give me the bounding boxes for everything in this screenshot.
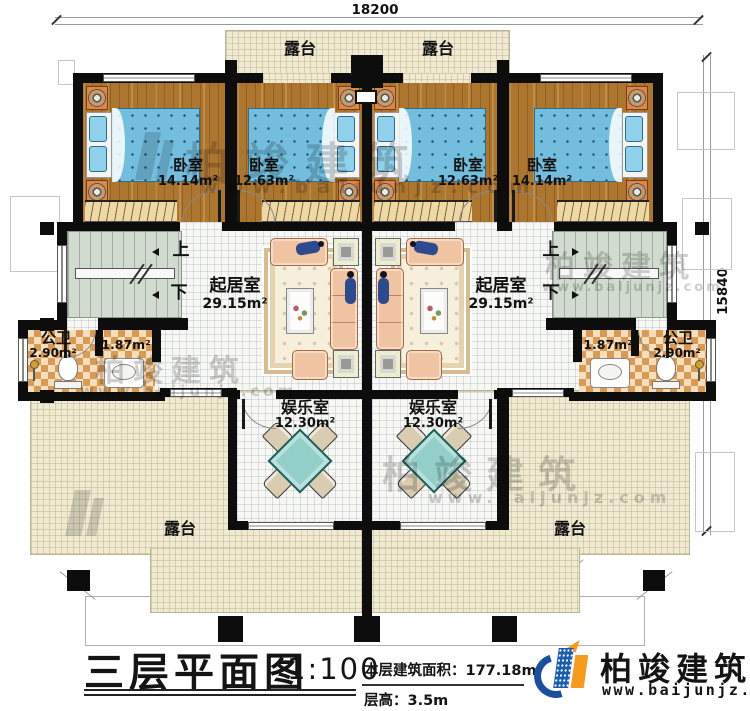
terrace-top-right-label: 露台 xyxy=(410,40,466,58)
window xyxy=(57,245,67,303)
toilet-tank xyxy=(54,381,82,389)
bedroom-4-area: 14.14m² xyxy=(496,175,588,189)
window xyxy=(170,389,222,397)
deck-column xyxy=(492,616,517,642)
entertainment-right-label: 娱乐室 xyxy=(393,399,473,417)
stair-arrow xyxy=(572,248,579,256)
floor-area-label: 本层建筑面积：177.18m² xyxy=(364,659,543,680)
title-underline-2 xyxy=(84,694,356,696)
logo-building-orange xyxy=(571,655,589,688)
person-head xyxy=(410,241,416,247)
wall xyxy=(228,521,248,530)
wardrobe xyxy=(374,200,472,222)
eave-outline xyxy=(695,452,735,532)
nightstand xyxy=(626,86,648,110)
stairs-left-down-label: 下 xyxy=(168,284,190,303)
person-figure xyxy=(345,278,356,304)
wardrobe xyxy=(85,200,177,222)
window xyxy=(540,74,632,82)
stairs-left-up-label: 上 xyxy=(170,241,192,260)
window xyxy=(667,245,677,303)
terrace-door-opening xyxy=(403,73,471,83)
wall xyxy=(554,222,677,231)
pillow xyxy=(337,116,355,142)
living-left-area: 29.15m² xyxy=(200,297,270,312)
window xyxy=(103,74,195,82)
pilaster xyxy=(40,222,54,235)
stairs-right-down-label: 下 xyxy=(540,284,562,303)
wall xyxy=(546,318,636,330)
bedroom-2-label: 卧室 xyxy=(218,157,310,174)
nightstand xyxy=(86,86,108,110)
wall xyxy=(279,222,455,231)
side-table xyxy=(375,350,401,378)
wall xyxy=(497,222,512,231)
nightstand xyxy=(374,86,396,110)
door-leaf xyxy=(494,190,497,222)
pillow xyxy=(377,146,395,172)
bed-sheet-fold xyxy=(322,108,335,182)
bath-left-area: 2.90m² xyxy=(22,347,84,360)
window xyxy=(400,522,486,530)
stair-arrow xyxy=(152,248,159,256)
door-leaf xyxy=(218,190,221,222)
deck-column xyxy=(354,616,380,642)
person-head xyxy=(318,241,324,247)
pillow xyxy=(89,146,107,172)
wardrobe xyxy=(262,200,360,222)
eave-outline xyxy=(677,92,735,150)
left-wall xyxy=(73,73,83,231)
door-leaf xyxy=(242,399,245,429)
stair-arrow xyxy=(152,291,159,299)
pillow xyxy=(89,116,107,142)
armchair xyxy=(406,350,442,380)
shower-fixture xyxy=(695,360,704,369)
column-inset xyxy=(355,90,377,104)
shower-stem xyxy=(698,369,700,381)
logo-website: www.baijunjz.com xyxy=(602,681,750,699)
wall xyxy=(57,222,180,231)
terrace-top-left-label: 露台 xyxy=(272,40,328,58)
floor-height-label: 层高：3.5m xyxy=(364,689,448,710)
wardrobe xyxy=(557,200,649,222)
entertainment-right-area: 12.30m² xyxy=(396,417,470,431)
deck-column xyxy=(67,570,90,591)
terrace-door-opening xyxy=(263,73,331,83)
flower-decor xyxy=(424,298,444,324)
side-table xyxy=(375,238,401,266)
entertainment-left-area: 12.30m² xyxy=(268,417,342,431)
bath-left-label: 公卫 xyxy=(28,330,84,347)
door-leaf xyxy=(237,190,240,222)
side-table xyxy=(333,238,359,266)
sink xyxy=(112,364,136,380)
living-right-area: 29.15m² xyxy=(466,297,536,312)
armchair xyxy=(292,350,328,380)
person-head xyxy=(380,271,387,278)
door-leaf xyxy=(512,190,515,222)
party-wall xyxy=(497,60,509,231)
bath-right-label: 公卫 xyxy=(650,330,706,347)
deck-column xyxy=(218,616,243,642)
shower-stem xyxy=(33,369,35,381)
sink xyxy=(598,364,622,380)
stair-arrow xyxy=(572,291,579,299)
titleblock-divider xyxy=(362,684,524,686)
wall xyxy=(98,318,188,330)
bed-sheet-fold xyxy=(609,108,622,182)
pilaster xyxy=(695,222,709,235)
deck-column xyxy=(643,570,665,591)
pilaster xyxy=(40,390,54,403)
column xyxy=(351,55,383,88)
top-dimension-line-2 xyxy=(55,24,703,25)
living-right-label: 起居室 xyxy=(468,277,534,296)
terrace-bottom-left-label: 露台 xyxy=(148,520,212,538)
stairs-left-rail xyxy=(75,268,175,279)
stairs-right-up-label: 上 xyxy=(540,241,562,260)
pillow xyxy=(377,116,395,142)
shower-fixture xyxy=(30,360,39,369)
window xyxy=(512,389,564,397)
pillow xyxy=(625,116,643,142)
title-underline xyxy=(84,689,356,691)
right-wall xyxy=(653,73,663,231)
bath-right-sub-area: 1.87m² xyxy=(580,338,636,352)
bedroom-4-label: 卧室 xyxy=(496,157,588,174)
wall xyxy=(362,521,400,530)
toilet-tank xyxy=(652,381,680,389)
terrace-bottom-right-label: 露台 xyxy=(538,520,602,538)
person-head xyxy=(347,271,354,278)
stairs-right-rail xyxy=(559,268,659,279)
pillow xyxy=(337,146,355,172)
floor-plan-canvas: 18200 15840 xyxy=(0,0,750,711)
side-table xyxy=(333,350,359,378)
wall xyxy=(569,392,716,401)
flower-decor xyxy=(290,298,310,324)
bath-right-area: 2.90m² xyxy=(646,347,708,360)
center-party-wall xyxy=(362,55,372,618)
person-figure xyxy=(378,278,389,304)
top-dimension-label: 18200 xyxy=(342,3,408,18)
living-left-label: 起居室 xyxy=(202,277,268,296)
right-dimension-label: 15840 xyxy=(716,268,731,315)
wall xyxy=(228,390,237,530)
entertainment-left-label: 娱乐室 xyxy=(265,399,345,417)
wall xyxy=(222,222,279,231)
door-leaf xyxy=(489,399,492,429)
wall xyxy=(486,521,509,530)
pillow xyxy=(625,146,643,172)
window xyxy=(248,522,334,530)
bath-left-sub-area: 1.87m² xyxy=(98,338,154,352)
bedroom-2-area: 12.63m² xyxy=(218,175,310,189)
party-wall xyxy=(225,60,237,231)
wall xyxy=(497,390,509,530)
